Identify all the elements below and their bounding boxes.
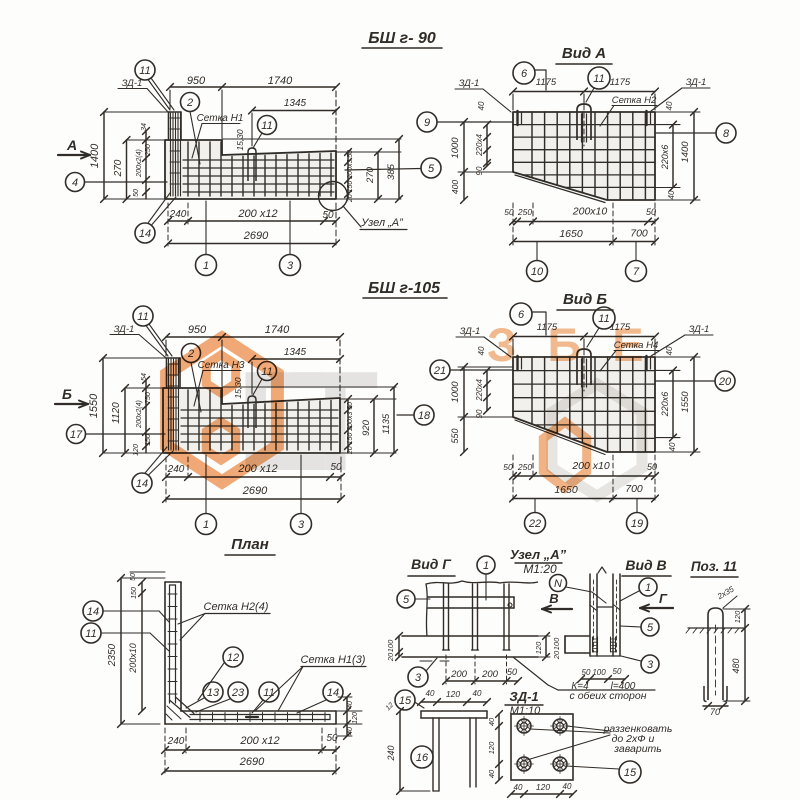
svg-text:2: 2 <box>186 97 193 109</box>
svg-text:90: 90 <box>475 409 484 418</box>
svg-text:с обеих сторон: с обеих сторон <box>570 690 647 702</box>
svg-text:200 х12: 200 х12 <box>237 208 277 220</box>
svg-text:40: 40 <box>426 689 435 698</box>
svg-text:Вид Г: Вид Г <box>411 556 452 572</box>
svg-text:90: 90 <box>475 166 484 175</box>
svg-text:1550: 1550 <box>680 391 691 413</box>
svg-text:20: 20 <box>718 376 732 388</box>
svg-text:Поз. 11: Поз. 11 <box>691 559 737 574</box>
svg-text:2690: 2690 <box>242 485 268 497</box>
svg-text:50: 50 <box>647 462 657 472</box>
svg-text:40: 40 <box>667 190 676 199</box>
svg-text:750: 750 <box>145 392 152 404</box>
svg-text:480: 480 <box>731 658 741 673</box>
svg-text:22: 22 <box>528 518 541 530</box>
svg-text:8: 8 <box>723 128 730 140</box>
svg-text:14: 14 <box>136 478 148 490</box>
svg-text:2350: 2350 <box>107 643 118 667</box>
svg-text:240: 240 <box>386 745 396 761</box>
svg-text:5: 5 <box>428 163 435 175</box>
svg-text:15,30: 15,30 <box>235 129 245 151</box>
svg-text:120: 120 <box>133 444 140 456</box>
svg-text:2690: 2690 <box>243 230 269 242</box>
svg-text:5: 5 <box>647 622 654 634</box>
svg-text:70: 70 <box>710 707 720 717</box>
svg-text:40: 40 <box>347 701 354 709</box>
svg-text:100: 100 <box>386 639 395 652</box>
svg-text:3: 3 <box>647 659 654 671</box>
svg-text:15: 15 <box>399 695 412 707</box>
svg-text:1740: 1740 <box>268 75 293 87</box>
svg-text:200: 200 <box>450 669 468 680</box>
svg-text:В: В <box>549 591 558 606</box>
svg-text:100: 100 <box>552 637 561 650</box>
svg-text:Вид А: Вид А <box>562 45 606 62</box>
svg-text:ЗД-1: ЗД-1 <box>689 324 710 335</box>
svg-text:220х6: 220х6 <box>660 145 670 171</box>
svg-text:120: 120 <box>446 689 460 699</box>
svg-text:N: N <box>554 578 562 590</box>
svg-text:40: 40 <box>563 782 572 791</box>
svg-text:50: 50 <box>613 667 622 676</box>
svg-text:1: 1 <box>203 519 209 531</box>
svg-text:220х4: 220х4 <box>475 379 484 402</box>
svg-text:40: 40 <box>477 346 486 355</box>
svg-text:700: 700 <box>630 228 648 240</box>
svg-text:16: 16 <box>416 752 429 764</box>
svg-text:14: 14 <box>87 606 99 618</box>
svg-text:400: 400 <box>450 180 460 194</box>
svg-text:ЗД-1: ЗД-1 <box>114 324 135 335</box>
svg-text:950: 950 <box>187 75 206 87</box>
svg-text:40: 40 <box>477 101 486 110</box>
svg-text:ЗД-1: ЗД-1 <box>460 326 481 337</box>
svg-text:21: 21 <box>433 365 446 377</box>
svg-text:240: 240 <box>167 464 185 475</box>
svg-text:3: 3 <box>298 519 305 531</box>
svg-text:1175: 1175 <box>610 77 631 88</box>
svg-text:120: 120 <box>534 641 543 654</box>
svg-text:М1:10: М1:10 <box>510 705 541 717</box>
svg-text:200х2(4): 200х2(4) <box>136 149 143 178</box>
svg-text:150: 150 <box>131 587 138 599</box>
svg-text:Сетка Н1(3): Сетка Н1(3) <box>301 654 366 666</box>
svg-text:50: 50 <box>133 189 140 197</box>
svg-text:40: 40 <box>665 101 674 110</box>
svg-text:700: 700 <box>625 483 643 495</box>
svg-text:120: 120 <box>352 712 359 724</box>
svg-text:11: 11 <box>85 628 96 640</box>
svg-text:1345: 1345 <box>284 347 307 358</box>
svg-text:220х6: 220х6 <box>660 392 670 418</box>
svg-text:Б: Б <box>62 386 72 402</box>
svg-text:385: 385 <box>386 163 397 180</box>
svg-text:200х10: 200х10 <box>572 206 608 218</box>
svg-text:Вид В: Вид В <box>625 557 666 573</box>
svg-text:М1:20: М1:20 <box>523 562 557 576</box>
svg-text:150: 150 <box>145 434 152 446</box>
svg-text:11: 11 <box>137 311 148 323</box>
svg-text:40: 40 <box>487 717 496 726</box>
svg-text:40: 40 <box>347 727 354 735</box>
svg-text:ЗД-1: ЗД-1 <box>686 77 707 88</box>
svg-text:Сетка Н2: Сетка Н2 <box>612 95 657 106</box>
svg-text:ЗБЕ: ЗБЕ <box>487 318 675 371</box>
svg-text:15: 15 <box>624 767 637 779</box>
svg-text:18: 18 <box>418 410 431 422</box>
svg-text:23: 23 <box>231 687 245 699</box>
svg-text:40: 40 <box>487 769 496 778</box>
svg-text:200 х12: 200 х12 <box>239 735 279 747</box>
svg-text:1740: 1740 <box>265 324 290 336</box>
svg-text:50: 50 <box>646 207 656 217</box>
svg-text:12: 12 <box>227 652 239 664</box>
svg-text:14: 14 <box>139 228 151 240</box>
svg-text:250: 250 <box>517 207 532 217</box>
svg-text:1400: 1400 <box>680 141 691 163</box>
svg-text:2690: 2690 <box>239 756 265 768</box>
svg-text:40: 40 <box>473 689 482 698</box>
svg-text:120: 120 <box>733 610 742 623</box>
svg-text:54: 54 <box>141 373 148 381</box>
svg-text:200: 200 <box>481 669 499 680</box>
svg-text:6: 6 <box>521 68 528 80</box>
svg-text:План: План <box>231 536 269 553</box>
svg-text:270: 270 <box>113 159 124 177</box>
svg-text:1: 1 <box>203 260 209 272</box>
svg-text:20: 20 <box>386 652 395 662</box>
svg-text:50: 50 <box>503 462 513 472</box>
svg-text:13: 13 <box>207 687 220 699</box>
svg-text:ЗД-1: ЗД-1 <box>122 78 143 89</box>
svg-text:1000: 1000 <box>450 137 461 159</box>
svg-text:250: 250 <box>145 144 152 157</box>
svg-text:1550: 1550 <box>88 393 100 418</box>
svg-text:240: 240 <box>167 736 185 747</box>
svg-text:920: 920 <box>361 419 372 436</box>
svg-text:4: 4 <box>72 177 78 189</box>
svg-text:17: 17 <box>70 429 83 441</box>
svg-text:1: 1 <box>645 582 651 594</box>
svg-text:200х10: 200х10 <box>128 643 138 674</box>
svg-text:11: 11 <box>263 687 274 699</box>
svg-text:Вид Б: Вид Б <box>563 291 607 308</box>
svg-text:240: 240 <box>169 209 187 220</box>
svg-text:1000: 1000 <box>450 381 461 403</box>
svg-text:3: 3 <box>287 260 294 272</box>
svg-text:11: 11 <box>593 73 604 85</box>
svg-text:100: 100 <box>592 668 606 677</box>
svg-text:120: 120 <box>536 782 550 792</box>
svg-text:Сетка Н1: Сетка Н1 <box>197 113 244 124</box>
svg-text:950: 950 <box>188 324 207 336</box>
svg-text:50: 50 <box>504 207 514 217</box>
svg-text:50: 50 <box>582 668 591 677</box>
svg-text:250: 250 <box>517 462 532 472</box>
svg-text:ЗД-1: ЗД-1 <box>459 78 480 89</box>
svg-text:1650: 1650 <box>559 228 583 240</box>
svg-text:А: А <box>66 137 77 153</box>
svg-text:19: 19 <box>631 518 643 530</box>
svg-text:50: 50 <box>322 210 334 221</box>
svg-text:БШ г-105: БШ г-105 <box>368 280 441 297</box>
svg-text:заварить: заварить <box>613 743 662 755</box>
svg-text:11: 11 <box>139 65 150 77</box>
svg-text:40: 40 <box>514 783 523 792</box>
svg-text:11: 11 <box>261 120 272 132</box>
svg-text:9: 9 <box>424 117 430 129</box>
svg-text:ЗД-1: ЗД-1 <box>509 689 538 704</box>
svg-text:50: 50 <box>130 573 137 581</box>
svg-text:БШ г- 90: БШ г- 90 <box>368 30 436 47</box>
svg-text:1345: 1345 <box>284 98 307 109</box>
svg-text:34: 34 <box>141 123 148 131</box>
svg-text:7: 7 <box>633 266 640 278</box>
svg-text:10: 10 <box>531 266 544 278</box>
svg-text:120: 120 <box>487 741 496 754</box>
svg-text:5: 5 <box>403 594 410 606</box>
svg-text:50: 50 <box>507 667 517 677</box>
svg-text:40: 40 <box>668 442 677 451</box>
svg-text:220х4: 220х4 <box>475 134 484 157</box>
svg-text:Узел „А”: Узел „А” <box>510 547 567 562</box>
svg-text:20: 20 <box>552 650 561 660</box>
svg-text:Узел „А”: Узел „А” <box>360 217 404 229</box>
svg-text:1120: 1120 <box>111 402 122 424</box>
svg-text:Сетка Н2(4): Сетка Н2(4) <box>204 601 269 613</box>
svg-text:550: 550 <box>450 428 460 443</box>
svg-text:Г: Г <box>659 591 668 606</box>
svg-text:200х2(4): 200х2(4) <box>136 400 143 429</box>
svg-text:3: 3 <box>415 672 422 684</box>
svg-text:1135: 1135 <box>381 413 392 434</box>
svg-text:14: 14 <box>327 687 339 699</box>
svg-text:50: 50 <box>330 462 342 473</box>
svg-text:1: 1 <box>483 560 489 572</box>
